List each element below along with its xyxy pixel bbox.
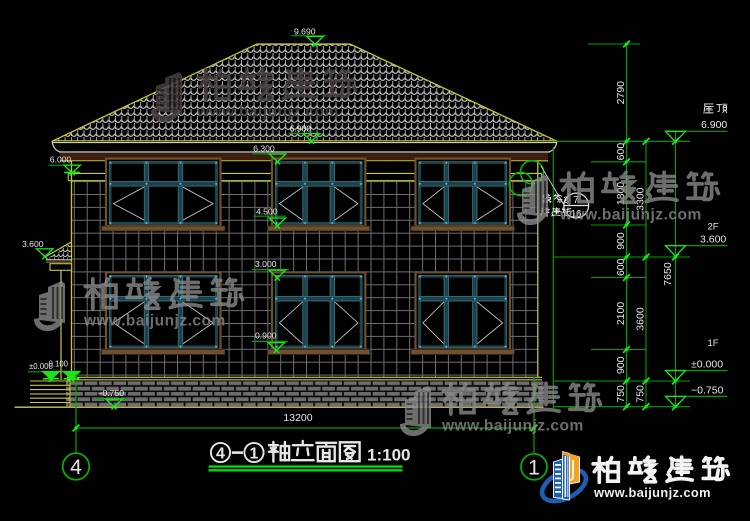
svg-text:3.000: 3.000 (255, 259, 277, 269)
svg-text:www.baijunjz.com: www.baijunjz.com (441, 418, 584, 435)
svg-text:6.900: 6.900 (701, 119, 727, 131)
svg-text:0.100: 0.100 (49, 359, 69, 368)
svg-text:±0.000: ±0.000 (691, 359, 723, 371)
svg-text:600: 600 (615, 258, 627, 276)
svg-text:−0.750: −0.750 (691, 385, 724, 397)
svg-text:2F: 2F (708, 222, 719, 233)
svg-text:4: 4 (70, 456, 82, 479)
svg-text:3.600: 3.600 (22, 239, 44, 249)
svg-text:0.900: 0.900 (255, 330, 277, 340)
svg-text:www.baijunjz.com: www.baijunjz.com (559, 207, 702, 224)
svg-text:2100: 2100 (615, 302, 627, 326)
svg-text:900: 900 (615, 232, 627, 250)
svg-text:1:100: 1:100 (367, 445, 410, 464)
svg-text:4.500: 4.500 (256, 206, 278, 216)
svg-text:750: 750 (615, 385, 627, 403)
svg-text:−0.750: −0.750 (98, 388, 125, 398)
svg-text:7650: 7650 (662, 262, 674, 286)
svg-text:900: 900 (615, 356, 627, 374)
svg-text:www.baijunjz.com: www.baijunjz.com (83, 313, 226, 330)
svg-text:6.300: 6.300 (253, 143, 275, 153)
svg-text:3600: 3600 (635, 307, 647, 331)
svg-text:13200: 13200 (283, 412, 312, 424)
svg-text:1: 1 (250, 446, 259, 463)
svg-text:600: 600 (615, 143, 627, 161)
svg-text:6.900: 6.900 (290, 124, 312, 134)
svg-text:1: 1 (528, 456, 540, 479)
svg-text:www.baijunjz.com: www.baijunjz.com (593, 485, 711, 500)
svg-text:4: 4 (216, 446, 225, 463)
svg-text:3.600: 3.600 (700, 234, 726, 246)
svg-text:www.baijunjz.com: www.baijunjz.com (196, 104, 339, 121)
svg-text:9.690: 9.690 (294, 26, 316, 36)
svg-text:6.000: 6.000 (50, 154, 72, 164)
svg-text:750: 750 (635, 385, 647, 403)
svg-text:1F: 1F (708, 338, 719, 349)
svg-text:2790: 2790 (615, 81, 627, 105)
